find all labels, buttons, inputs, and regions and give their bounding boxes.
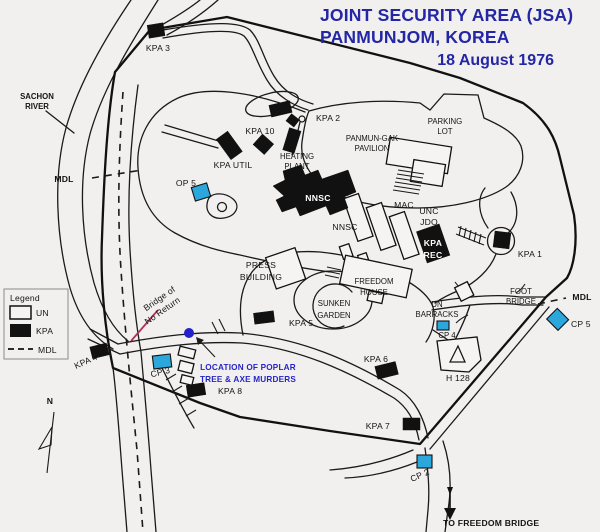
building-cp3-2 bbox=[178, 360, 194, 373]
label-panmungak-1: PANMUN-GAK bbox=[346, 134, 399, 143]
jsa-map-canvas: Legend UN KPA MDL N KPA 3 SACHON RIVER M… bbox=[0, 0, 600, 532]
checkpoint-cp5 bbox=[547, 308, 569, 330]
title-line-1: JOINT SECURITY AREA (JSA) bbox=[320, 5, 573, 25]
label-freedom-1: FREEDOM bbox=[355, 277, 394, 286]
label-kpa1: KPA 1 bbox=[518, 249, 542, 259]
label-kpa-rec-1: KPA bbox=[424, 238, 442, 248]
building-nnsc-row bbox=[343, 194, 373, 242]
label-heating-1: HEATING bbox=[280, 152, 314, 161]
gate-ticks bbox=[212, 319, 225, 334]
checkpoint-cp2 bbox=[417, 455, 432, 468]
label-cp4: CP 4 bbox=[438, 331, 456, 340]
freedom-bridge-arrow-icon bbox=[444, 487, 456, 520]
building-kpa7 bbox=[403, 418, 420, 430]
title-line-2: PANMUNJOM, KOREA bbox=[320, 27, 510, 47]
pond bbox=[207, 194, 237, 218]
map-labels: KPA 3 SACHON RIVER MDL KPA 2 KPA 10 KPA … bbox=[20, 43, 592, 528]
label-freedom-2: HOUSE bbox=[360, 288, 388, 297]
label-h128: H 128 bbox=[446, 373, 470, 383]
building-kpa5 bbox=[253, 311, 274, 324]
label-press-2: BUILDING bbox=[240, 272, 282, 282]
label-un-barracks-1: UN bbox=[431, 300, 442, 309]
label-to-freedom-bridge: TO FREEDOM BRIDGE bbox=[443, 518, 539, 528]
building-nnsc-main bbox=[273, 165, 356, 216]
legend: Legend UN KPA MDL bbox=[4, 289, 68, 359]
label-poplar-1: LOCATION OF POPLAR bbox=[200, 363, 296, 372]
un-buildings bbox=[178, 137, 481, 385]
label-kpa-rec-2: REC bbox=[423, 250, 442, 260]
label-sunken-2: GARDEN bbox=[317, 311, 350, 320]
building-kpa8 bbox=[186, 383, 206, 398]
label-cp5: CP 5 bbox=[571, 319, 591, 329]
legend-title: Legend bbox=[10, 293, 40, 303]
mdl-line-west-stub bbox=[92, 170, 142, 178]
label-foot-1: FOOT bbox=[510, 287, 532, 296]
legend-kpa-swatch bbox=[10, 324, 31, 337]
building-h128 bbox=[437, 337, 481, 372]
label-kpa7: KPA 7 bbox=[366, 421, 390, 431]
legend-un-label: UN bbox=[36, 308, 49, 318]
label-mdl-right: MDL bbox=[572, 292, 591, 302]
legend-kpa-label: KPA bbox=[36, 326, 53, 336]
label-nnsc-row: NNSC bbox=[332, 222, 357, 232]
label-kpa4: KPA 4 bbox=[73, 352, 99, 371]
building-kpa10 bbox=[253, 134, 274, 154]
building-kpa2-a bbox=[269, 101, 292, 117]
building-unc-jdo bbox=[389, 212, 419, 260]
label-press-1: PRESS bbox=[246, 260, 276, 270]
label-kpa6: KPA 6 bbox=[364, 354, 388, 364]
label-cp3: CP 3 bbox=[149, 365, 171, 379]
kpa2-circle bbox=[299, 116, 305, 122]
label-kpa10: KPA 10 bbox=[245, 126, 274, 136]
label-kpa-util: KPA UTIL bbox=[214, 160, 253, 170]
legend-mdl-label: MDL bbox=[38, 345, 57, 355]
label-sachon-2: RIVER bbox=[25, 102, 49, 111]
building-kpa6 bbox=[375, 362, 399, 380]
title-date: 18 August 1976 bbox=[437, 52, 554, 69]
label-cp2: CP 2 bbox=[409, 467, 431, 484]
compass-north-arrow-icon: N bbox=[39, 396, 54, 473]
building-kpa3 bbox=[147, 23, 165, 38]
building-cp3-3 bbox=[180, 375, 194, 386]
poplar-tree-marker bbox=[184, 328, 194, 338]
legend-un-swatch bbox=[10, 306, 31, 319]
building-kpa2-b bbox=[286, 114, 299, 127]
label-kpa8: KPA 8 bbox=[218, 386, 242, 396]
label-mac: MAC bbox=[394, 200, 414, 210]
building-cp3-1 bbox=[178, 346, 196, 359]
compass-north-label: N bbox=[47, 396, 53, 406]
label-mdl-left: MDL bbox=[54, 174, 73, 184]
label-sunken-1: SUNKEN bbox=[318, 299, 351, 308]
kpa1-steps bbox=[456, 226, 486, 245]
label-poplar-2: TREE & AXE MURDERS bbox=[200, 375, 296, 384]
label-jdo: JDO bbox=[420, 217, 438, 227]
label-un-barracks-2: BARRACKS bbox=[416, 310, 459, 319]
building-kpa-util bbox=[216, 131, 242, 159]
label-panmungak-2: PAVILION bbox=[355, 144, 390, 153]
label-sachon-1: SACHON bbox=[20, 92, 54, 101]
label-op5: OP 5 bbox=[176, 178, 196, 188]
label-heating-2: PLANT bbox=[284, 162, 309, 171]
checkpoint-cp4 bbox=[437, 321, 449, 330]
label-parking-2: LOT bbox=[437, 127, 452, 136]
label-foot-2: BRIDGE bbox=[506, 297, 536, 306]
label-kpa2: KPA 2 bbox=[316, 113, 340, 123]
label-nnsc-main: NNSC bbox=[305, 193, 331, 203]
building-kpa1 bbox=[493, 231, 511, 249]
map-title: JOINT SECURITY AREA (JSA) PANMUNJOM, KOR… bbox=[320, 5, 573, 69]
label-kpa5: KPA 5 bbox=[289, 318, 313, 328]
building-panmungak bbox=[386, 137, 451, 194]
label-unc: UNC bbox=[419, 206, 438, 216]
building-heating-plant bbox=[283, 128, 301, 154]
label-kpa3: KPA 3 bbox=[146, 43, 170, 53]
jsa-map: Legend UN KPA MDL N KPA 3 SACHON RIVER M… bbox=[0, 0, 600, 532]
building-mac bbox=[366, 203, 396, 251]
label-parking-1: PARKING bbox=[428, 117, 463, 126]
